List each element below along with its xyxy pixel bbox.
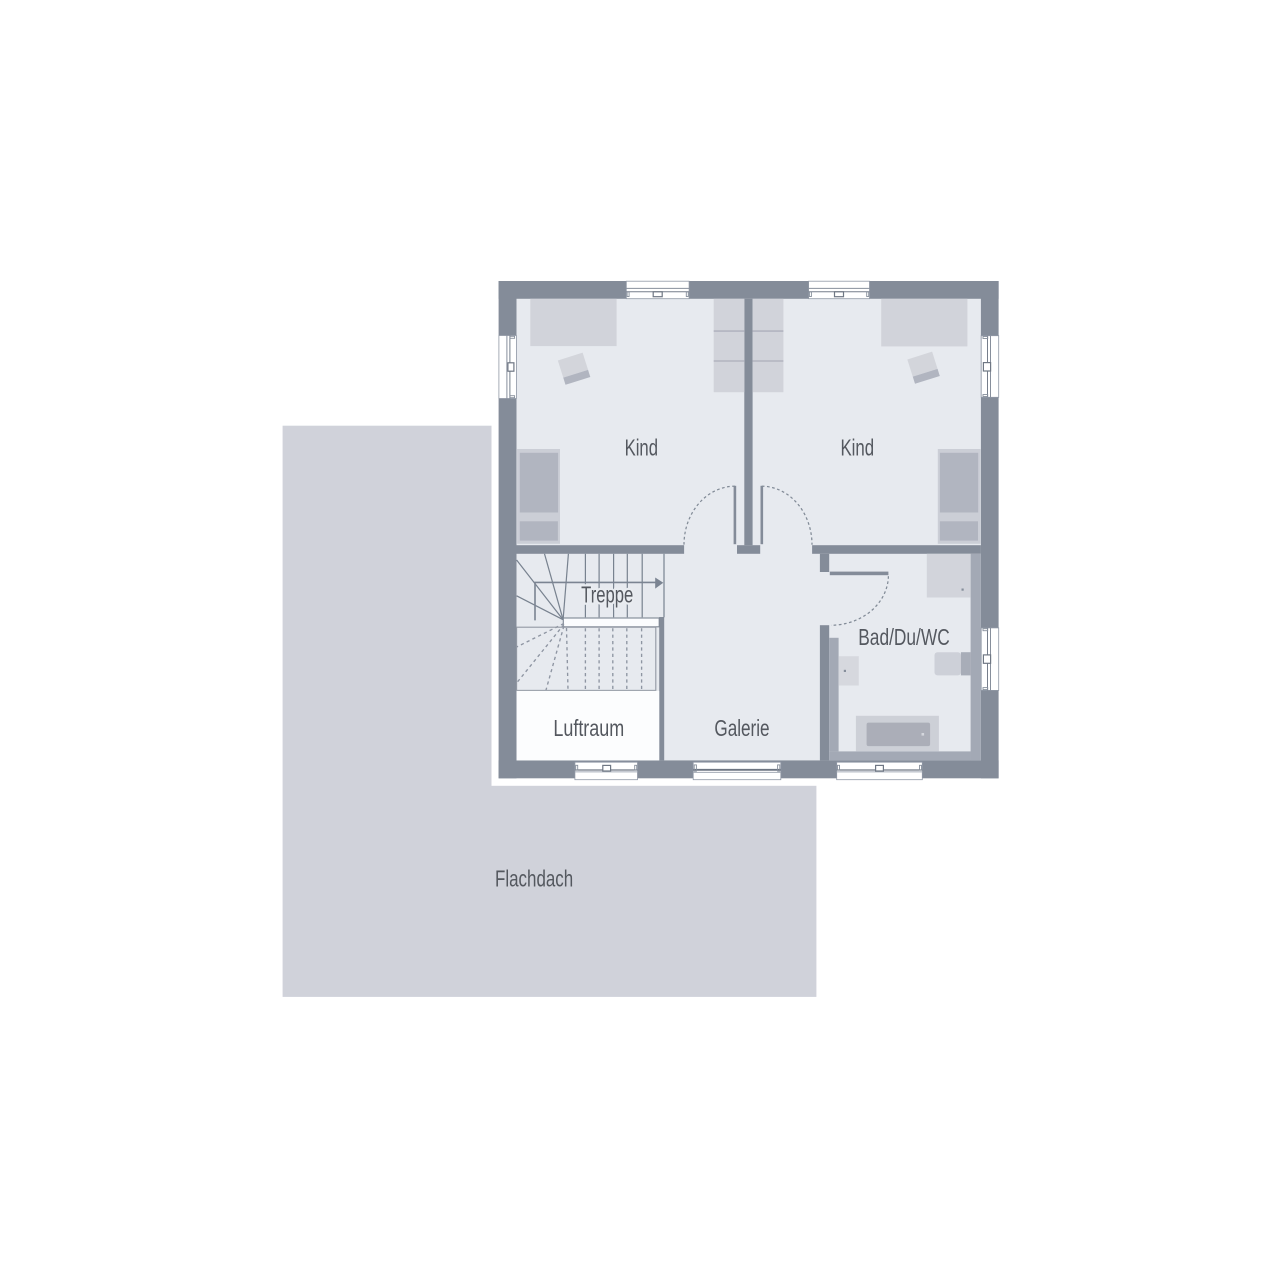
svg-text:Treppe: Treppe [581, 582, 633, 608]
svg-text:Bad/Du/WC: Bad/Du/WC [858, 624, 950, 650]
svg-text:Kind: Kind [625, 434, 658, 460]
svg-text:Luftraum: Luftraum [553, 715, 624, 741]
svg-text:Flachdach: Flachdach [495, 866, 573, 892]
svg-text:Kind: Kind [840, 434, 874, 460]
svg-text:Galerie: Galerie [714, 715, 769, 741]
